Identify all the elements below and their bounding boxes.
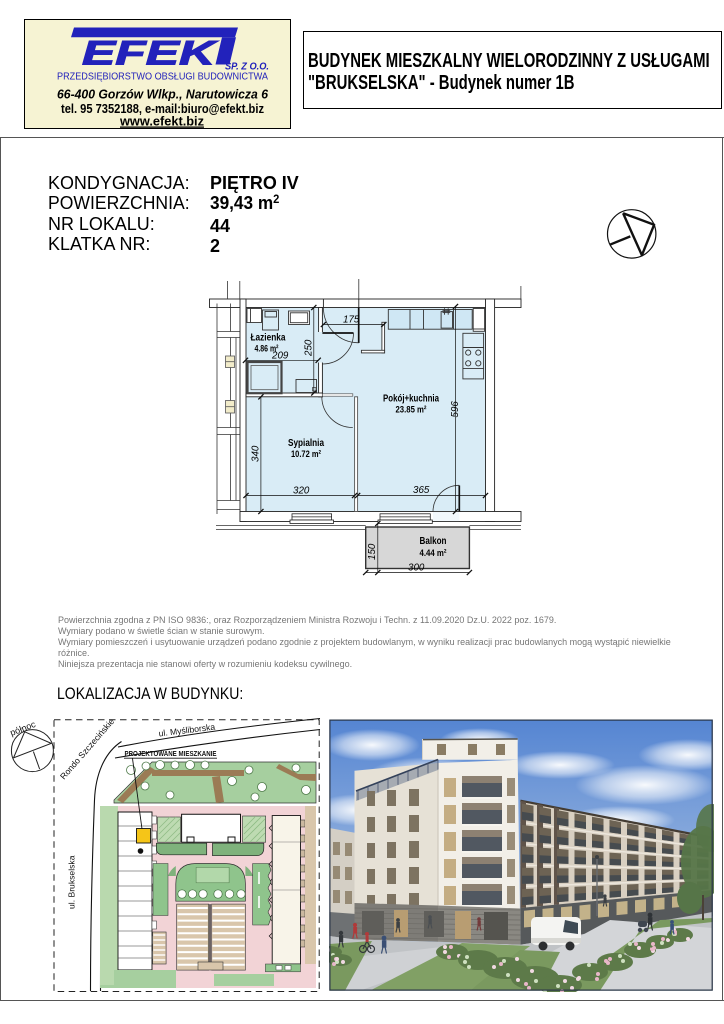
svg-text:596: 596 xyxy=(450,401,461,418)
svg-text:365: 365 xyxy=(413,485,430,496)
svg-text:ul. Brukselska: ul. Brukselska xyxy=(67,855,77,909)
svg-text:250: 250 xyxy=(304,339,315,357)
svg-text:209: 209 xyxy=(271,351,289,362)
svg-text:4.44 m²: 4.44 m² xyxy=(420,548,447,559)
svg-text:EFEK: EFEK xyxy=(82,35,218,73)
svg-text:23.85 m²: 23.85 m² xyxy=(396,405,427,416)
svg-text:www.efekt.biz: www.efekt.biz xyxy=(119,115,204,129)
svg-text:66-400 Gorzów Wlkp., Narutowic: 66-400 Gorzów Wlkp., Narutowicza 6 xyxy=(57,87,269,102)
svg-text:10.72 m²: 10.72 m² xyxy=(291,449,321,460)
svg-text:Sypialnia: Sypialnia xyxy=(288,438,324,449)
svg-text:175: 175 xyxy=(343,315,360,326)
svg-text:300: 300 xyxy=(408,563,425,574)
svg-text:PRZEDSIĘBIORSTWO OBSŁUGI BUDOW: PRZEDSIĘBIORSTWO OBSŁUGI BUDOWNICTWA xyxy=(57,72,268,83)
svg-text:PROJEKTOWANE MIESZKANIE: PROJEKTOWANE MIESZKANIE xyxy=(125,749,217,758)
svg-text:Balkon: Balkon xyxy=(420,536,447,547)
svg-text:Łazienka: Łazienka xyxy=(251,333,286,344)
svg-text:ul. Myśliborska: ul. Myśliborska xyxy=(158,722,216,739)
svg-text:150: 150 xyxy=(367,543,378,560)
svg-text:Rondo Szczecińskie: Rondo Szczecińskie xyxy=(58,716,116,781)
svg-text:320: 320 xyxy=(293,486,310,497)
svg-text:340: 340 xyxy=(251,445,262,462)
svg-text:Pokój+kuchnia: Pokój+kuchnia xyxy=(383,394,439,405)
